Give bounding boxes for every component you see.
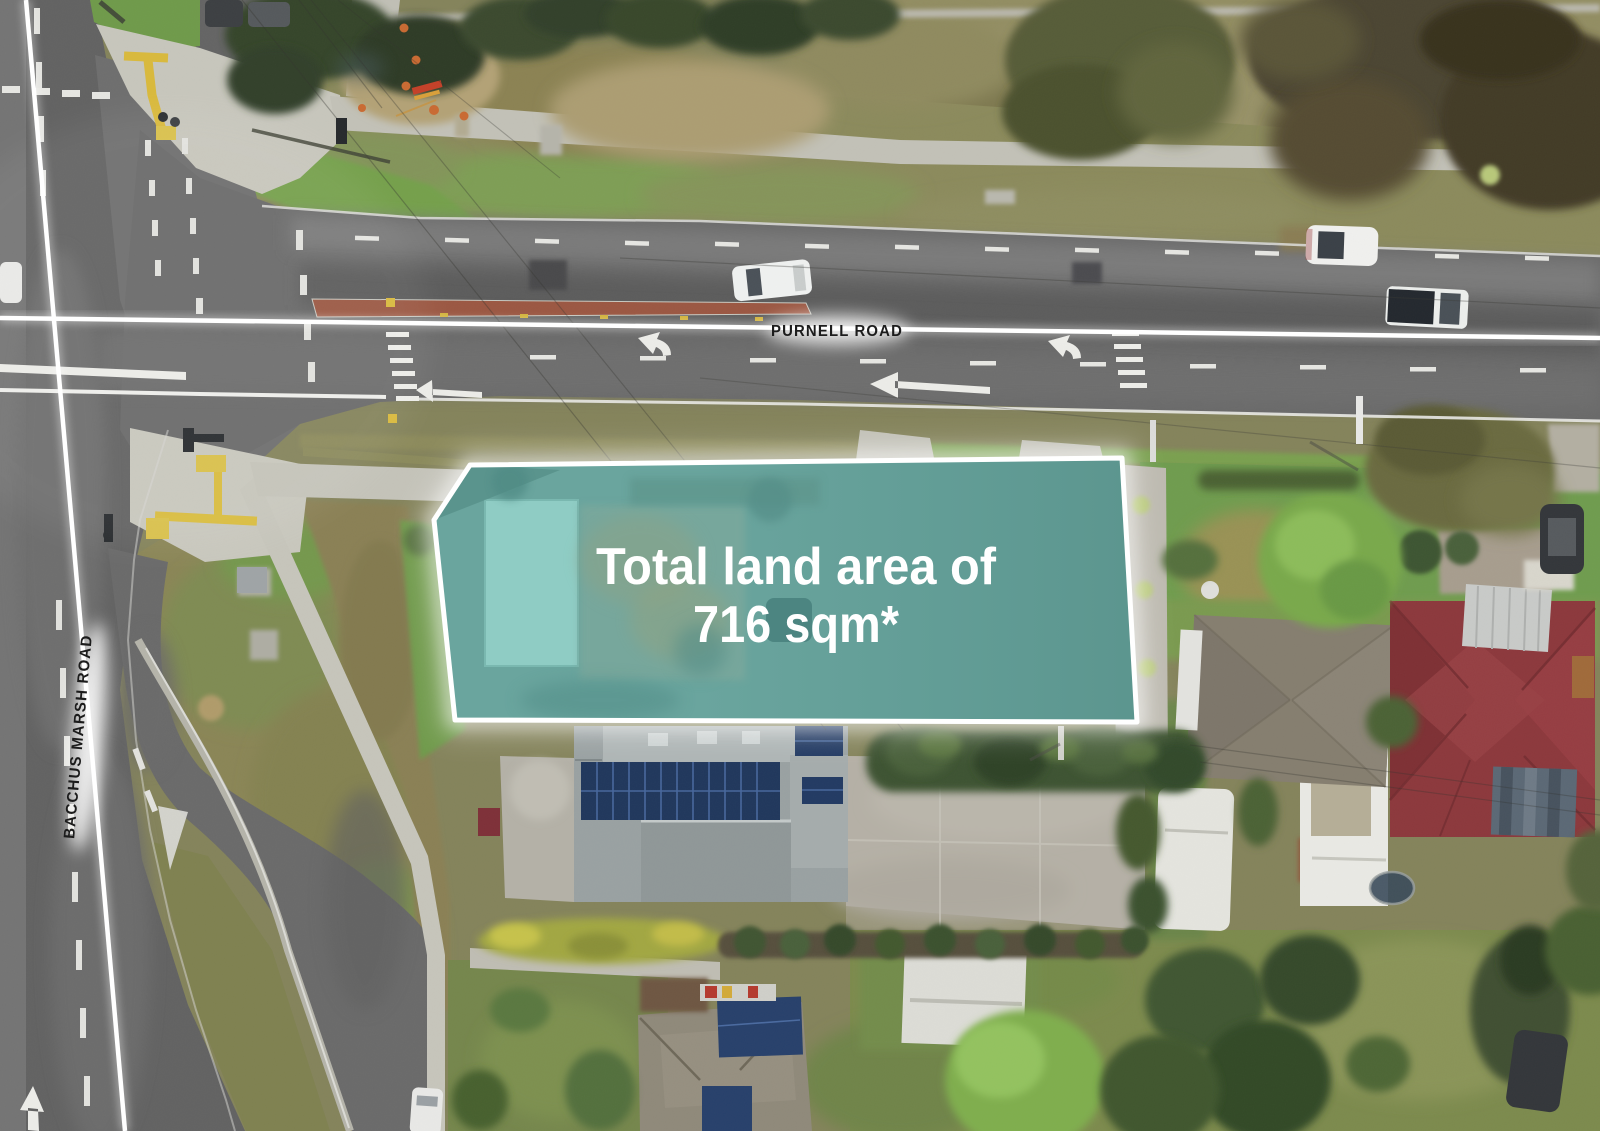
- svg-text:716 sqm*: 716 sqm*: [693, 596, 900, 654]
- svg-text:Total land area of: Total land area of: [596, 538, 997, 596]
- svg-text:PURNELL ROAD: PURNELL ROAD: [771, 323, 903, 340]
